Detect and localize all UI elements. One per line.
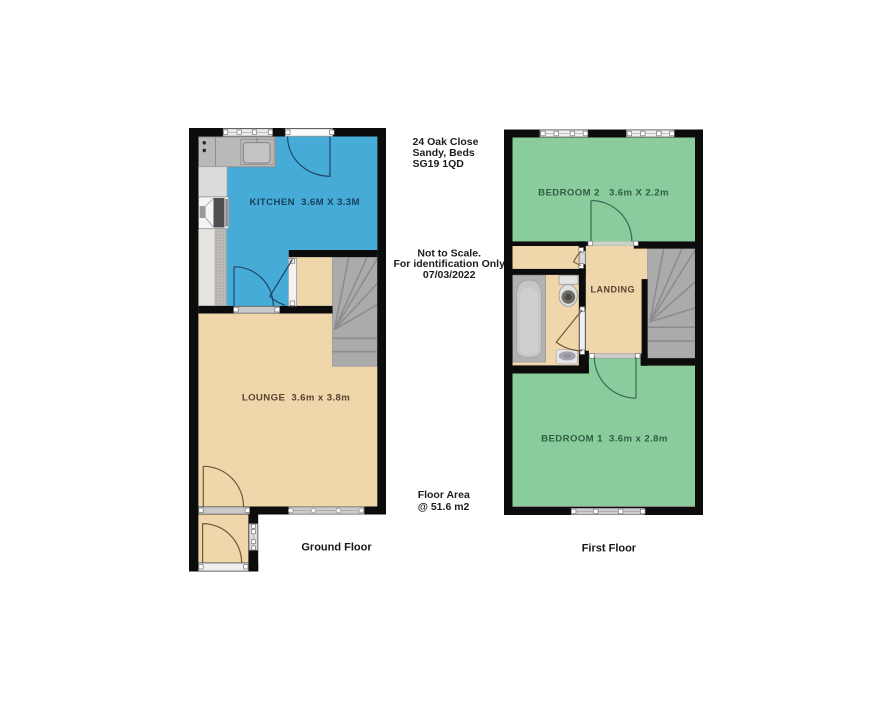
svg-text:LOUNGE 3.6m x 3.8m: LOUNGE 3.6m x 3.8m bbox=[242, 392, 350, 403]
svg-text:Ground Floor: Ground Floor bbox=[301, 542, 372, 554]
svg-text:SG19 1QD: SG19 1QD bbox=[413, 158, 465, 170]
svg-text:KITCHEN 3.6M X 3.3M: KITCHEN 3.6M X 3.3M bbox=[250, 197, 360, 208]
svg-text:LANDING: LANDING bbox=[591, 284, 636, 294]
svg-text:07/03/2022: 07/03/2022 bbox=[423, 269, 476, 281]
svg-text:First Floor: First Floor bbox=[582, 543, 637, 555]
svg-text:BEDROOM 1 3.6m x 2.8m: BEDROOM 1 3.6m x 2.8m bbox=[541, 433, 668, 444]
svg-text:BEDROOM 2 3.6m X 2.2m: BEDROOM 2 3.6m X 2.2m bbox=[538, 187, 669, 198]
svg-text:@ 51.6 m2: @ 51.6 m2 bbox=[418, 501, 470, 513]
svg-text:Floor Area: Floor Area bbox=[418, 489, 470, 501]
